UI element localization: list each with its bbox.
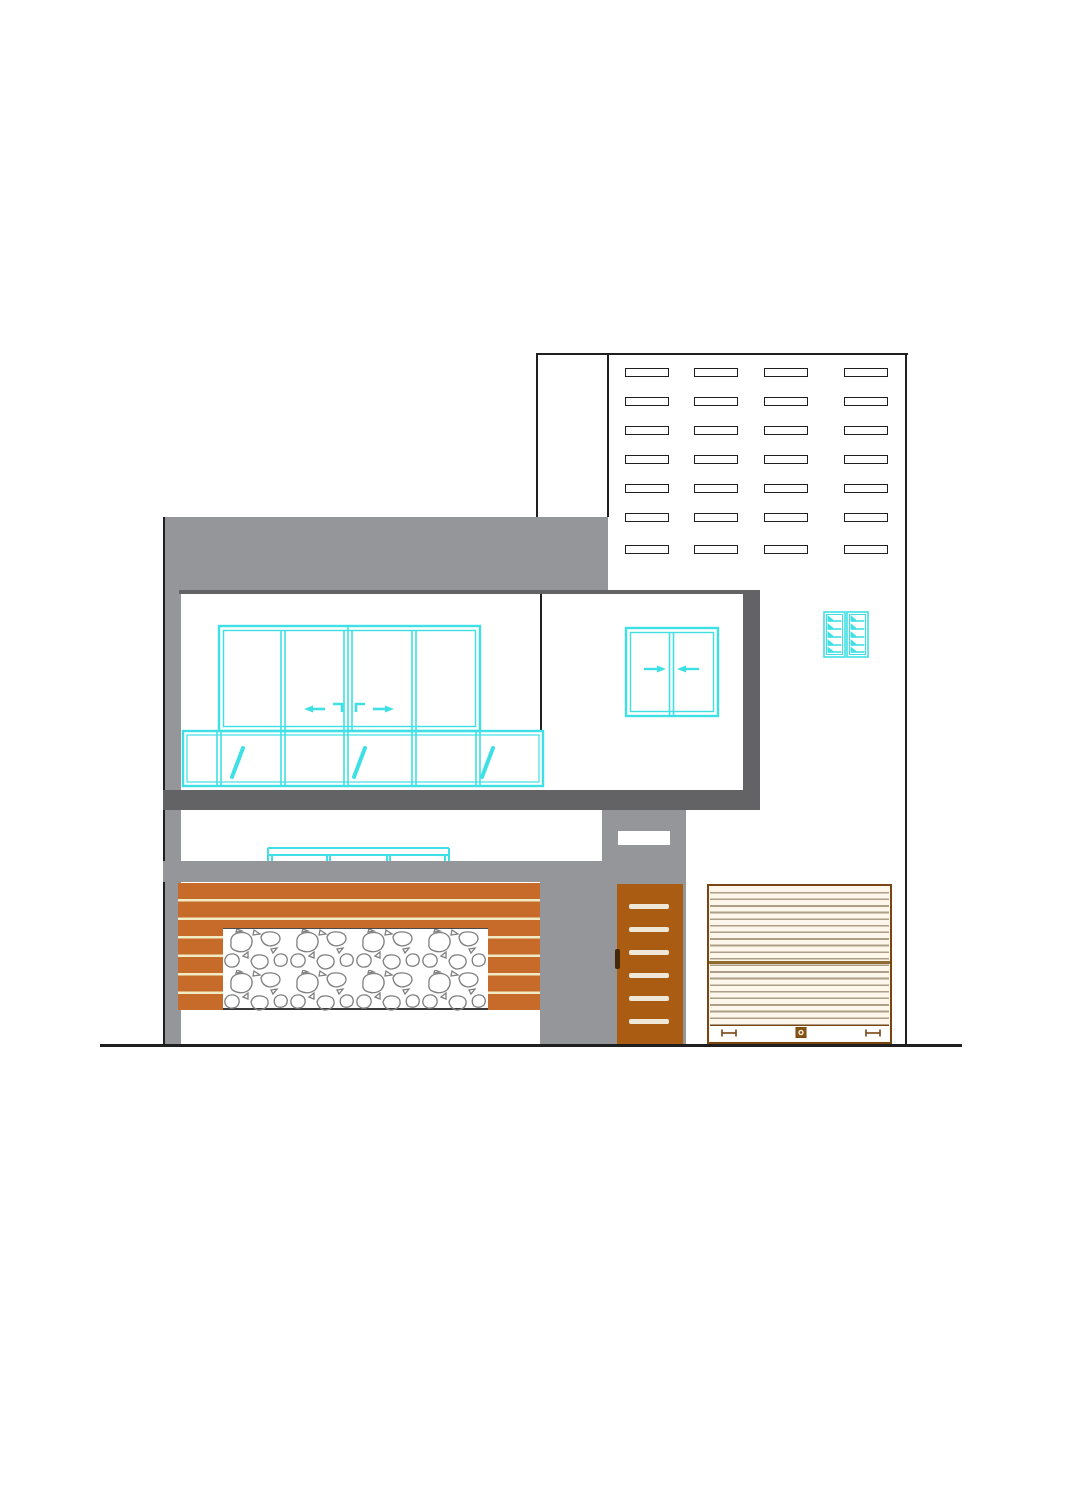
louver-slat	[764, 484, 808, 493]
louver-slat	[694, 397, 738, 406]
louver-slat	[694, 484, 738, 493]
upper-block-inner-divider	[607, 353, 609, 517]
shutter-bottom-rail	[710, 1025, 889, 1041]
louver-slat	[625, 484, 669, 493]
main-window-upper-frame	[219, 626, 480, 731]
door-stripe	[629, 1019, 669, 1024]
shutter-handle-left-icon	[722, 1030, 736, 1037]
parapet-band	[163, 517, 608, 590]
upper-block-left-outline	[536, 353, 538, 517]
shutter-mid-rail	[709, 961, 890, 964]
glass-marks	[232, 748, 493, 777]
shutter-lock-icon	[796, 1028, 806, 1038]
louver-slat	[625, 455, 669, 464]
louver-slat	[764, 426, 808, 435]
louver-slat	[625, 397, 669, 406]
louver-slat	[764, 397, 808, 406]
louver-slat	[694, 368, 738, 377]
louver-slat	[694, 426, 738, 435]
louver-slat	[625, 426, 669, 435]
main-window	[176, 620, 548, 790]
bay-right-border	[743, 590, 760, 810]
door-stripe	[629, 904, 669, 909]
door-stripe	[629, 996, 669, 1001]
secondary-window	[622, 624, 722, 720]
louver-slat	[694, 513, 738, 522]
door-stripe	[629, 927, 669, 932]
stone-panel	[223, 928, 488, 1010]
louver-slat	[625, 368, 669, 377]
door-stripe	[629, 973, 669, 978]
louver-slat	[764, 455, 808, 464]
entry-block-recess	[618, 831, 670, 845]
bay-top-border	[179, 590, 758, 594]
door-handle-icon	[615, 949, 620, 969]
bay-bottom-border	[163, 790, 758, 810]
louver-slat	[764, 368, 808, 377]
shutter-slats	[710, 887, 889, 1027]
rolling-shutter	[707, 884, 892, 1044]
lintel-band	[163, 861, 686, 882]
louver-slat	[844, 455, 888, 464]
louver-slat	[694, 545, 738, 554]
upper-block-top-outline	[536, 353, 908, 355]
entry-door	[617, 884, 683, 1046]
louver-slat	[844, 484, 888, 493]
shutter-handle-right-icon	[866, 1030, 880, 1037]
louver-slat	[844, 397, 888, 406]
louver-slat	[625, 545, 669, 554]
ventilator	[822, 610, 870, 659]
door-stripe	[629, 950, 669, 955]
clerestory-window	[264, 844, 454, 861]
louver-slat	[844, 368, 888, 377]
building-right-outline	[905, 353, 907, 1046]
louver-slat	[694, 455, 738, 464]
elevation-drawing	[0, 0, 1080, 1488]
ground-line	[100, 1044, 962, 1047]
louver-slat	[625, 513, 669, 522]
louver-slat	[764, 545, 808, 554]
secondary-window-arrows	[657, 666, 686, 673]
louver-slat	[844, 426, 888, 435]
louver-slat	[844, 513, 888, 522]
louver-slat	[844, 545, 888, 554]
louver-slat	[764, 513, 808, 522]
